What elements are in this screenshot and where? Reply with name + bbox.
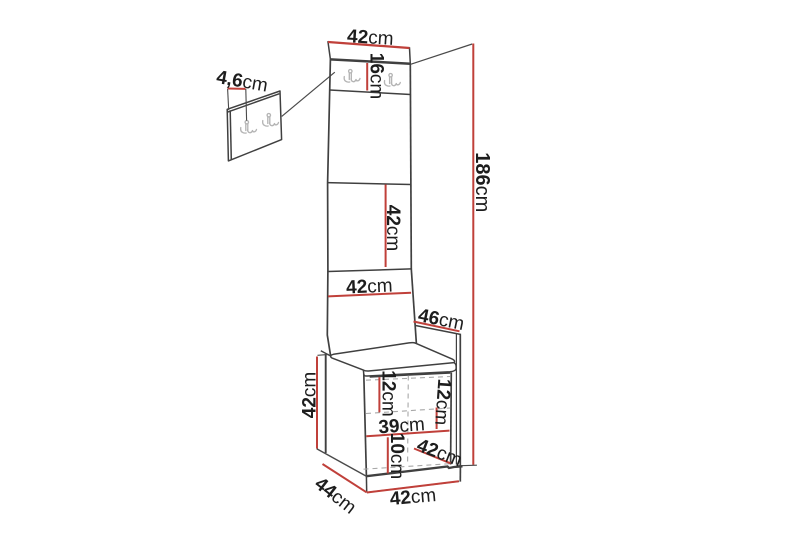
svg-text:42cm: 42cm [389, 485, 437, 510]
svg-text:12cm: 12cm [430, 378, 454, 426]
svg-text:16cm: 16cm [366, 53, 387, 99]
svg-text:186cm: 186cm [471, 152, 493, 212]
svg-text:42cm: 42cm [346, 276, 393, 299]
svg-text:10cm: 10cm [386, 433, 407, 479]
svg-text:12cm: 12cm [377, 370, 398, 416]
svg-text:42cm: 42cm [382, 205, 403, 251]
svg-text:42cm: 42cm [299, 372, 320, 418]
svg-text:42cm: 42cm [347, 26, 395, 50]
